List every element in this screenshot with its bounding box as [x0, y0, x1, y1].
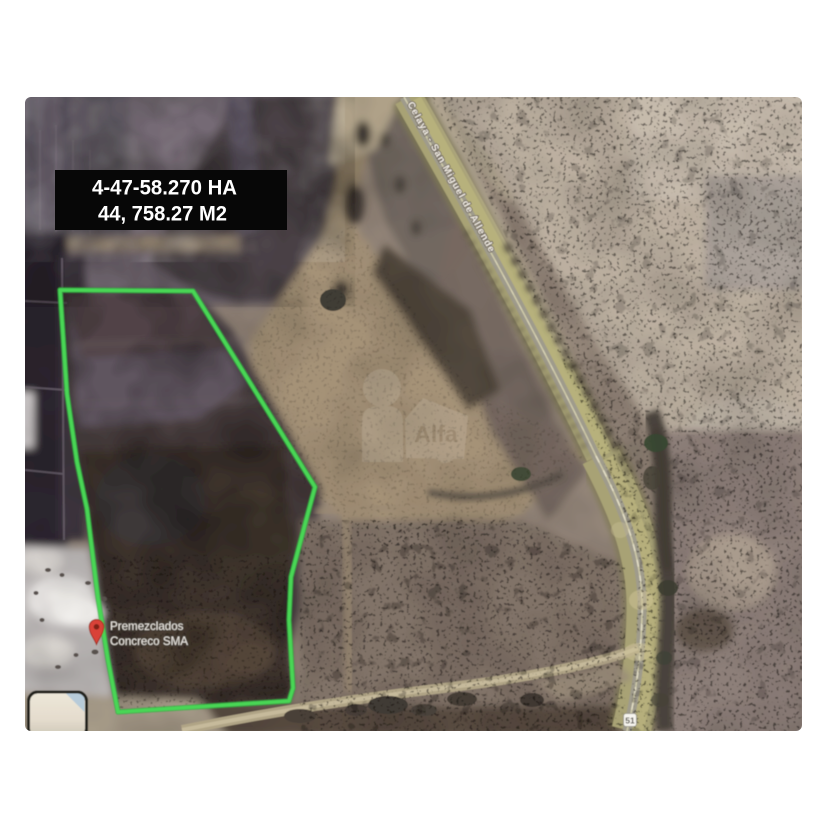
svg-text:44, 758.27 M2: 44, 758.27 M2: [98, 203, 227, 226]
svg-text:4-47-58.270 HA: 4-47-58.270 HA: [92, 177, 237, 200]
